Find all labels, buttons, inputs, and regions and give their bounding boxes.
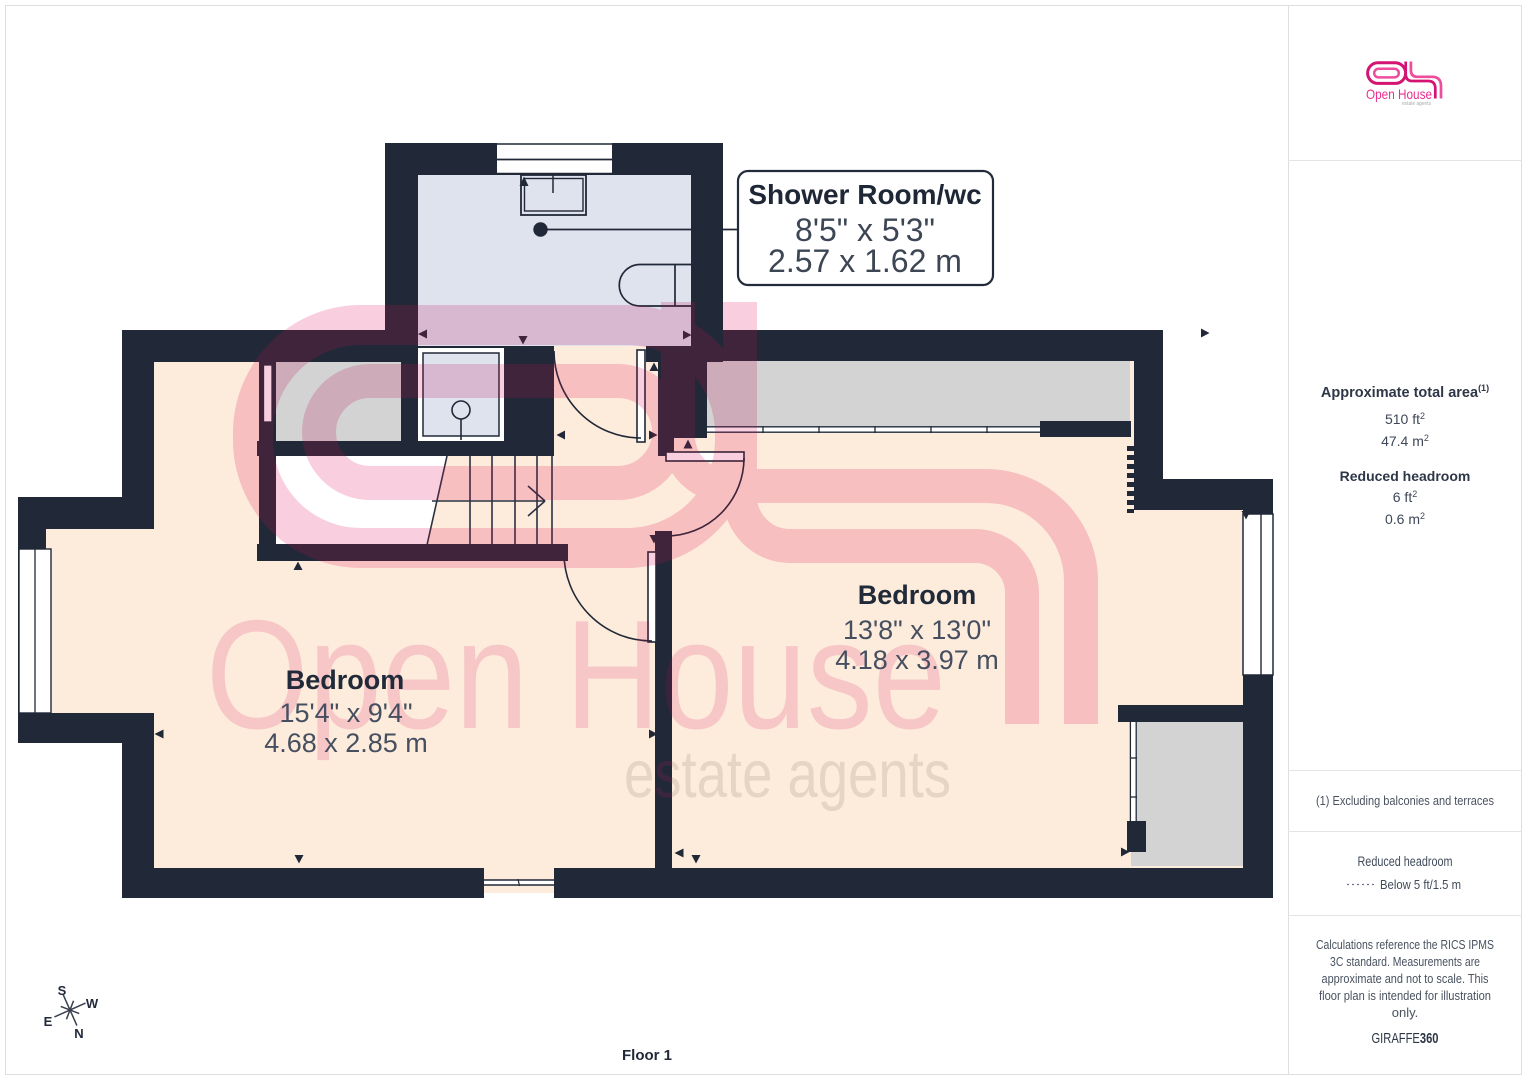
svg-text:Approximate total area(1): Approximate total area(1) xyxy=(1321,383,1489,401)
svg-text:E: E xyxy=(44,1014,53,1029)
svg-text:S: S xyxy=(58,983,67,998)
svg-text:Reduced headroom: Reduced headroom xyxy=(1340,468,1471,484)
svg-text:Bedroom: Bedroom xyxy=(858,580,977,610)
svg-text:Open House: Open House xyxy=(1366,86,1432,102)
svg-text:W: W xyxy=(86,996,99,1011)
svg-text:floor plan is intended for ill: floor plan is intended for illustration xyxy=(1319,988,1491,1003)
svg-text:Shower Room/wc: Shower Room/wc xyxy=(748,179,981,210)
svg-text:Reduced headroom: Reduced headroom xyxy=(1358,854,1453,869)
svg-text:4.68 x 2.85 m: 4.68 x 2.85 m xyxy=(264,728,428,758)
svg-text:Calculations reference the RIC: Calculations reference the RICS IPMS xyxy=(1316,937,1494,952)
svg-text:0.6 m2: 0.6 m2 xyxy=(1385,511,1425,527)
svg-text:Floor 1: Floor 1 xyxy=(622,1047,672,1064)
svg-text:approximate and not to scale.: approximate and not to scale. This xyxy=(1322,971,1489,986)
svg-text:Below 5 ft/1.5 m: Below 5 ft/1.5 m xyxy=(1380,877,1461,892)
svg-text:6 ft2: 6 ft2 xyxy=(1393,489,1417,505)
svg-text:510 ft2: 510 ft2 xyxy=(1385,411,1425,427)
svg-text:N: N xyxy=(74,1026,83,1041)
svg-text:2.57 x 1.62 m: 2.57 x 1.62 m xyxy=(768,243,962,279)
svg-text:3C standard. Measurements are: 3C standard. Measurements are xyxy=(1330,954,1480,969)
svg-text:15'4" x 9'4": 15'4" x 9'4" xyxy=(279,698,412,728)
svg-text:13'8" x 13'0": 13'8" x 13'0" xyxy=(843,615,991,645)
svg-text:GIRAFFE360: GIRAFFE360 xyxy=(1372,1031,1439,1047)
svg-text:47.4 m2: 47.4 m2 xyxy=(1381,433,1429,449)
svg-text:estate agents: estate agents xyxy=(1402,101,1431,107)
svg-text:Bedroom: Bedroom xyxy=(286,665,405,695)
svg-text:4.18 x 3.97 m: 4.18 x 3.97 m xyxy=(835,645,999,675)
svg-text:(1) Excluding balconies and te: (1) Excluding balconies and terraces xyxy=(1316,793,1494,808)
svg-text:only.: only. xyxy=(1392,1005,1419,1020)
